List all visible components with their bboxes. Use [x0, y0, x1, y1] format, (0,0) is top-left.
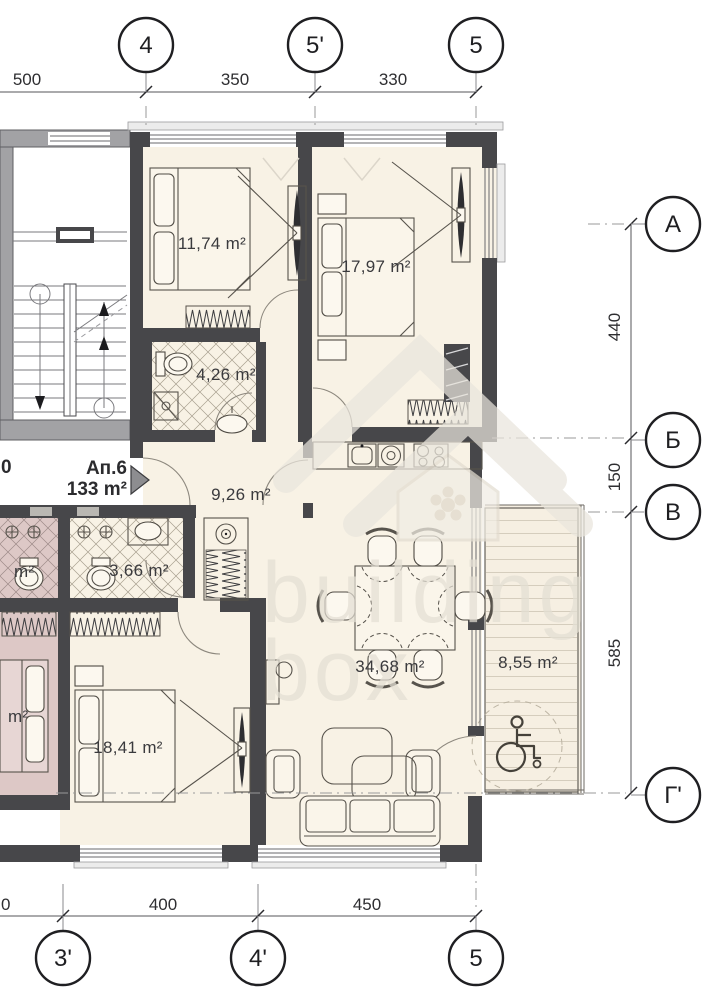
room-label-bedroom2: 17,97 m²: [341, 257, 411, 276]
room-label-bathroom2: 3,66 m²: [109, 561, 169, 580]
wardrobe-strip-3: [2, 612, 56, 636]
axis-label-5-top: 5: [469, 32, 482, 59]
window-top-right: [344, 135, 446, 143]
room-label-living: 34,68 m²: [355, 657, 425, 676]
room-label-neighbor-bath: m²: [14, 562, 34, 581]
room-label-hallway: 9,26 m²: [211, 485, 271, 504]
bed-top-right-icon: [318, 194, 414, 360]
axis-circle-5p: 5': [288, 18, 342, 72]
axis-label-5-bottom: 5: [469, 945, 482, 972]
room-label-bathroom1: 4,26 m²: [196, 365, 256, 384]
window-bottom-left: [80, 849, 222, 857]
dim-top-330: 330: [379, 70, 407, 89]
dimension-top: 500 350 330: [0, 70, 482, 98]
axis-circle-a: A: [646, 197, 700, 251]
room-label-bedroom1: 11,74 m²: [178, 234, 246, 253]
armchair-left-icon: [266, 750, 300, 798]
dim-top-350: 350: [221, 70, 249, 89]
neighbor-apartment-partial-text: 0: [1, 457, 12, 478]
axis-circle-3p: 3': [36, 931, 90, 985]
dimension-bottom: 400 450 0: [0, 895, 482, 931]
axis-label-v: B: [665, 499, 681, 526]
apartment-name: Ап.6: [86, 458, 127, 479]
stairwell: [0, 130, 130, 440]
armchair-right-icon: [406, 750, 440, 798]
axis-circle-5-top: 5: [449, 18, 503, 72]
axis-label-4: 4: [139, 32, 152, 59]
room-label-bedroom3: 18,41 m²: [93, 738, 163, 757]
apartment-label: Ап.6 133 m² 0: [1, 457, 149, 500]
dim-top-500: 500: [13, 70, 41, 89]
axis-circle-4: 4: [119, 18, 173, 72]
axis-circle-4p: 4': [231, 931, 285, 985]
toilet-icon: [156, 352, 192, 376]
axis-label-g: Г': [664, 782, 682, 809]
apartment-area: 133 m²: [67, 479, 127, 500]
axis-circle-v: B: [646, 485, 700, 539]
axis-label-3p: 3': [54, 945, 72, 972]
axis-label-b-cyr: Б: [665, 427, 681, 454]
stairs: [14, 284, 127, 418]
dimension-right: 440 150 585: [605, 218, 646, 799]
axis-circle-5-bottom: 5: [449, 931, 503, 985]
floor-plan-page: building box 11,74 m² 17,97 m² 4,26 m² 9…: [0, 0, 721, 1000]
dim-bottom-400: 400: [149, 895, 177, 914]
sofa-icon: [300, 796, 440, 846]
dim-bottom-450: 450: [353, 895, 381, 914]
wardrobe-strip-1: [186, 306, 250, 328]
bed-top-left-icon: [150, 168, 250, 290]
window-bottom-right: [258, 849, 440, 857]
floor-plan-drawing: building box 11,74 m² 17,97 m² 4,26 m² 9…: [0, 0, 721, 1000]
axis-label-4p: 4': [249, 945, 267, 972]
dim-right-150: 150: [605, 463, 624, 491]
dim-right-585: 585: [605, 639, 624, 667]
room-label-neighbor-room: m²: [8, 707, 28, 726]
axis-circle-b-cyr: Б: [646, 413, 700, 467]
axis-label-a: A: [665, 211, 681, 238]
stairs-down-arrow-icon: [35, 396, 45, 410]
room-label-terrace: 8,55 m²: [498, 653, 558, 672]
dim-bottom-partial: 0: [1, 895, 10, 914]
dim-right-440: 440: [605, 313, 624, 341]
wardrobe-strip-4: [70, 612, 160, 636]
axis-label-5p: 5': [306, 32, 324, 59]
window-top-left: [150, 135, 296, 143]
axis-circle-g: Г': [646, 768, 700, 822]
stairs-up-arrow2-icon: [99, 336, 109, 350]
